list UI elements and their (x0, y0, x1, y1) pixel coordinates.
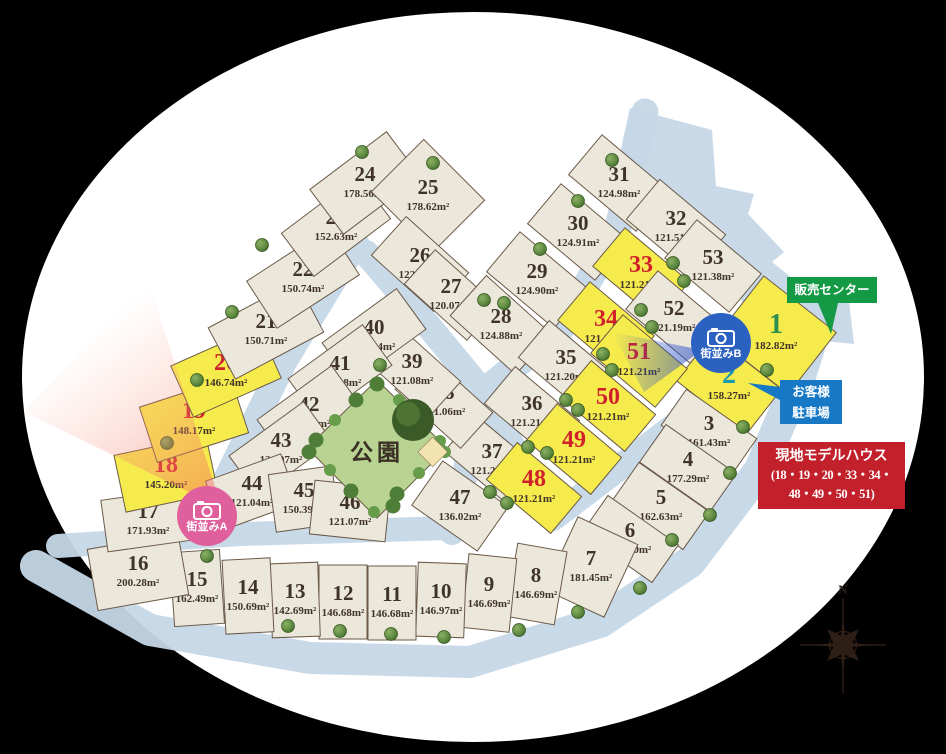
lot-11-area: 146.68m² (371, 608, 414, 620)
lot-50-number: 50 (596, 384, 620, 410)
tree-icon (560, 394, 573, 407)
lot-5-area: 162.63m² (640, 511, 683, 523)
lot-47-number: 47 (450, 485, 471, 509)
sales-center-text: 販売センター (794, 283, 869, 297)
lot-36-number: 36 (522, 391, 543, 415)
tree-icon (374, 359, 387, 372)
tree-icon (385, 628, 398, 641)
tree-icon (541, 447, 554, 460)
tree-icon (484, 486, 497, 499)
lot-4-area: 177.29m² (667, 473, 710, 485)
lot-16-number: 16 (128, 551, 149, 575)
tree-icon (427, 157, 440, 170)
tree-icon (646, 321, 659, 334)
parking-text-line2: 駐車場 (780, 403, 842, 424)
tree-icon (572, 606, 585, 619)
camera-icon (193, 500, 221, 520)
lot-14[interactable]: 14150.69m² (222, 558, 274, 634)
park-shrub (329, 414, 341, 426)
streetscape-b-button[interactable]: 街並みB (691, 313, 751, 373)
lot-17-area: 171.93m² (127, 525, 170, 537)
lot-30-number: 30 (568, 211, 589, 235)
park-label: 公園 (350, 440, 404, 465)
lot-47-area: 136.02m² (439, 511, 482, 523)
lot-1-area: 182.82m² (755, 340, 798, 352)
large-tree-highlight (396, 402, 420, 426)
lot-43-number: 43 (271, 428, 292, 452)
lot-44-number: 44 (242, 471, 264, 495)
lot-28-area: 124.88m² (480, 330, 523, 342)
lot-21-area: 150.71m² (245, 335, 288, 347)
lot-8-area: 146.69m² (515, 589, 558, 601)
tree-icon (704, 509, 717, 522)
park-shrub (344, 484, 359, 499)
park-shrub (349, 393, 364, 408)
map-canvas: 1182.82m²2158.27m²3161.43m²4177.29m²5162… (0, 0, 946, 754)
lot-4-number: 4 (683, 447, 694, 471)
lot-2-area: 158.27m² (708, 390, 751, 402)
lot-45-number: 45 (294, 478, 315, 502)
tree-icon (678, 275, 691, 288)
lot-11-number: 11 (382, 582, 402, 606)
lot-53-number: 53 (703, 245, 724, 269)
customer-parking-label[interactable]: お客様 駐車場 (780, 380, 842, 424)
tree-icon (226, 306, 239, 319)
lot-22-area: 150.74m² (282, 283, 325, 295)
streetscape-b-label: 街並みB (701, 349, 742, 360)
tree-icon (667, 257, 680, 270)
tree-icon (522, 441, 535, 454)
tree-icon (256, 239, 269, 252)
lot-20-area: 146.74m² (205, 377, 248, 389)
model-house-lots-line2: 48・49・50・51) (758, 485, 905, 504)
streetscape-a-button[interactable]: 街並みA (177, 486, 237, 546)
tree-icon (534, 243, 547, 256)
lot-31-area: 124.98m² (598, 188, 641, 200)
lot-9-area: 146.69m² (468, 598, 511, 610)
model-house-title: 現地モデルハウス (758, 447, 905, 466)
lot-35-number: 35 (556, 345, 577, 369)
lot-29-number: 29 (527, 259, 548, 283)
lot-9[interactable]: 9146.69m² (461, 554, 516, 633)
park-shrub (324, 464, 336, 476)
lot-13-number: 13 (285, 579, 306, 603)
tree-icon (478, 294, 491, 307)
lot-49-number: 49 (562, 427, 586, 453)
tree-icon (356, 146, 369, 159)
park-shrub (413, 467, 425, 479)
lot-39-number: 39 (402, 349, 423, 373)
lot-16-area: 200.28m² (117, 577, 160, 589)
lot-53-area: 121.38m² (692, 271, 735, 283)
lot-32-number: 32 (666, 206, 687, 230)
lot-14-number: 14 (238, 575, 260, 599)
tree-icon (201, 550, 214, 563)
lot-map: 1182.82m²2158.27m²3161.43m²4177.29m²5162… (0, 0, 946, 754)
lot-6-number: 6 (625, 518, 636, 542)
lot-7-number: 7 (586, 546, 597, 570)
lot-1-number: 1 (769, 309, 783, 340)
lot-24-number: 24 (355, 162, 377, 186)
lot-52-area: 121.19m² (653, 322, 696, 334)
model-house-lots-line1: (18・19・20・33・34・ (758, 466, 905, 485)
tree-icon (606, 364, 619, 377)
lot-48-number: 48 (522, 466, 546, 492)
park-shrub (302, 445, 317, 460)
tree-icon (501, 497, 514, 510)
lot-7-area: 181.45m² (570, 572, 613, 584)
lot-5-number: 5 (656, 485, 667, 509)
park-shrub (370, 377, 385, 392)
model-house-info-box: 現地モデルハウス (18・19・20・33・34・ 48・49・50・51) (758, 442, 905, 509)
lot-29-area: 124.90m² (516, 285, 559, 297)
lot-33-number: 33 (629, 252, 653, 278)
lot-44-area: 121.04m² (231, 497, 274, 509)
lot-25-area: 178.62m² (407, 201, 450, 213)
lot-12-number: 12 (333, 581, 354, 605)
tree-icon (606, 154, 619, 167)
lot-25-number: 25 (418, 175, 439, 199)
tree-icon (282, 620, 295, 633)
lot-9-number: 9 (484, 572, 495, 596)
streetscape-a-label: 街並みA (187, 522, 228, 533)
tree-icon (334, 625, 347, 638)
lot-8-number: 8 (531, 563, 542, 587)
tree-icon (438, 631, 451, 644)
lot-52-number: 52 (664, 296, 685, 320)
tree-icon (597, 348, 610, 361)
lot-46-area: 121.07m² (329, 516, 372, 528)
park-shrub (386, 499, 401, 514)
parking-text-line1: お客様 (780, 382, 842, 403)
tree-icon (635, 304, 648, 317)
tree-icon (737, 421, 750, 434)
sales-center-label[interactable]: 販売センター (787, 277, 877, 303)
tree-icon (761, 364, 774, 377)
lot-3-number: 3 (704, 411, 715, 435)
tree-icon (724, 467, 737, 480)
tree-icon (498, 297, 511, 310)
lot-37-number: 37 (482, 439, 503, 463)
lot-15-number: 15 (187, 567, 208, 591)
lot-39-area: 121.08m² (391, 375, 434, 387)
compass-north-label: N (838, 582, 848, 597)
tree-icon (666, 534, 679, 547)
park-shrub (368, 506, 380, 518)
lot-10-number: 10 (431, 579, 452, 603)
lot-10[interactable]: 10146.97m² (416, 562, 467, 638)
lot-12-area: 146.68m² (322, 607, 365, 619)
lot-49-area: 121.21m² (553, 454, 596, 466)
tree-icon (191, 374, 204, 387)
lot-14-area: 150.69m² (227, 601, 270, 613)
tree-icon (513, 624, 526, 637)
lot-13[interactable]: 13142.69m² (270, 562, 321, 638)
lot-30-area: 124.91m² (557, 237, 600, 249)
lot-27-number: 27 (441, 274, 462, 298)
camera-icon (707, 327, 735, 347)
tree-icon (572, 404, 585, 417)
lot-50-area: 121.21m² (587, 411, 630, 423)
tree-icon (572, 195, 585, 208)
lot-13-area: 142.69m² (274, 605, 317, 617)
lot-23-area: 152.63m² (315, 231, 358, 243)
lot-48-area: 121.21m² (513, 493, 556, 505)
lot-10-area: 146.97m² (420, 605, 463, 617)
tree-icon (634, 582, 647, 595)
